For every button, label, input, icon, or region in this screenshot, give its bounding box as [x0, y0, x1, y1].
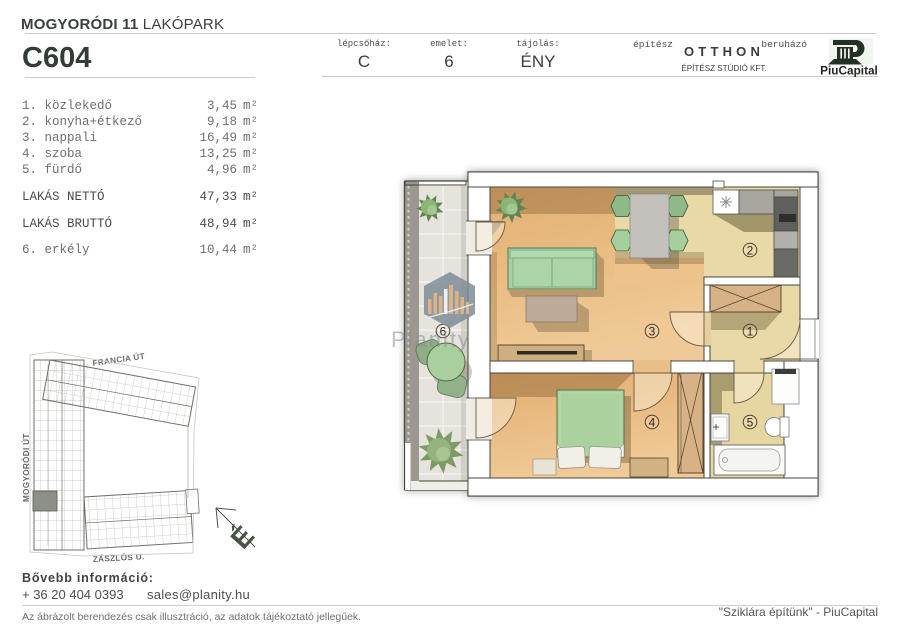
svg-text:5: 5 — [747, 415, 754, 429]
svg-text:Planity: Planity — [391, 327, 471, 352]
svg-text:PiuCapital: PiuCapital — [820, 64, 878, 78]
svg-text:4: 4 — [649, 415, 656, 429]
svg-text:1: 1 — [747, 324, 754, 338]
svg-text:MOGYORÓDI ÚT: MOGYORÓDI ÚT — [20, 433, 31, 502]
svg-text:ZÁSZLÓS U.: ZÁSZLÓS U. — [93, 550, 145, 564]
svg-text:FRANCIA ÚT: FRANCIA ÚT — [92, 350, 146, 368]
svg-text:É: É — [225, 520, 261, 555]
svg-text:2: 2 — [747, 243, 754, 257]
svg-text:3: 3 — [649, 324, 656, 338]
